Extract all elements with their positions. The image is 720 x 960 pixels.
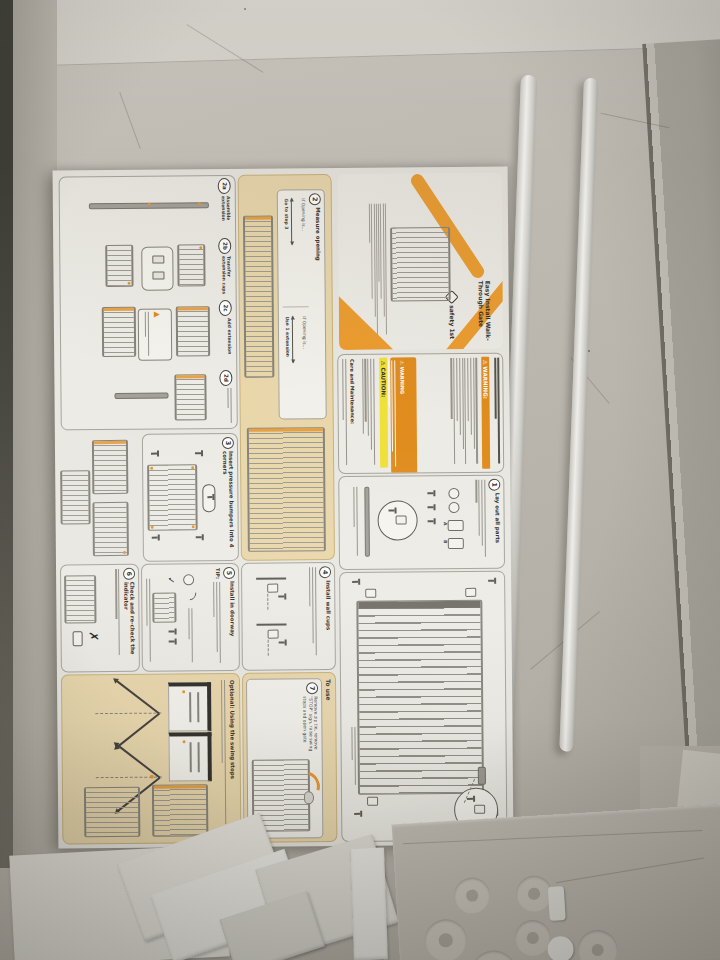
corner-detail-box [168,732,211,781]
warnings-panel: ⚠ WARNING: ⚠ WARNING ⚠ CAUTION: Care and… [337,353,504,474]
step4-panel: 4 Install wall cups [241,562,336,671]
washer-cutout [514,919,552,957]
wall-line [256,577,286,579]
step5-title: Install in doorway [229,581,236,636]
extra-gate-diagrams [61,434,139,561]
step7-number: 7 [306,682,318,694]
gate-illustration [356,600,484,795]
step2a-title: Assemble extension [220,196,231,236]
screw-icon [427,506,433,508]
step6-text [112,565,122,663]
step1-note [350,483,360,563]
knob-icon [183,574,194,585]
magnifier-inset [377,500,417,540]
screw-icon [196,536,202,538]
screw-icon [195,452,201,454]
gate-hinge-stile [358,601,480,609]
step6-title: Check and re-check the indicator [123,582,136,666]
floor-speck [588,350,590,352]
screw-icon [354,813,360,815]
white-plastic-knob [548,886,566,921]
screw-icon [278,595,284,597]
step4-text [306,563,319,663]
measure-arrow [292,316,293,362]
floor-scratch [119,92,140,149]
tip-label: TIP: [212,568,221,579]
mini-gate [174,374,206,420]
step2-goto3: Go to step 3 [283,198,289,258]
step4-number: 4 [319,566,331,578]
gate-illustration-panel [339,571,507,842]
check-icon: ✓ [166,576,176,584]
step4-title: Install wall cups [325,580,332,630]
leader-line [268,640,269,656]
warning-box-text [388,361,397,471]
washer-cutout [576,929,618,960]
step3-number: 3 [222,437,234,449]
screw-icon [427,492,433,494]
warnings-intro [491,354,503,472]
pressure-bumper-icon [202,484,215,512]
mini-gate [60,470,90,524]
extension-gate-illustration [247,427,326,552]
plastic-packaging-post [350,847,388,960]
care-text [339,355,350,473]
hand-icon [304,791,314,804]
x-icon: ✗ [87,631,101,641]
wall-cup-icon [448,488,459,499]
screw-icon [467,798,473,800]
screw-icon [279,641,285,643]
step6-number: 6 [123,568,135,580]
washer-cutout [424,918,468,960]
screw-icon [169,630,175,632]
warning-box: ⚠ WARNING [390,357,417,473]
step5-panel: 5 Install in doorway TIP: ✓ [141,563,240,672]
warning-text [447,354,480,472]
wall-cup-icon [365,589,376,598]
screw-icon [352,581,358,583]
brand-name: safety 1st [448,305,455,339]
washer-cutout [453,877,491,915]
mini-gate [176,306,210,356]
swing-stops-panel: Optional: Using the swing stops [61,673,241,845]
cap-icon [152,272,164,280]
cover-panel: Easy Install Walk-Through Gate safety 1s… [338,173,504,350]
swing-stops-title: Optional: Using the swing stops [229,680,237,830]
step2c-number: 2c [219,300,232,316]
mini-gate [84,787,140,837]
step5-number: 5 [223,567,235,579]
wall-cup-icon [474,805,485,814]
caution-bar: ⚠ CAUTION: [379,358,388,468]
mini-gate [105,245,133,287]
part-a-label: A [442,522,447,526]
rotate-arrow-icon [179,583,199,603]
photo-scene: Easy Install Walk-Through Gate safety 1s… [0,0,720,960]
mini-gate [102,307,136,357]
warning-bar: ⚠ WARNING: [481,357,490,469]
indicator-window-icon [73,631,83,646]
wall-line [257,623,287,625]
step2c-title: Add extension [226,318,232,354]
step2b-title: Transfer extension caps [221,256,232,298]
screw-icon [389,510,395,512]
metal-rod-2 [559,78,598,752]
mini-gate [152,592,176,622]
wall-cup-icon [396,515,407,524]
extension-steps-panel: 2a Assemble extension 2b Transfer extens… [59,175,238,431]
screw-icon [169,640,175,642]
orange-joint-dot [198,202,201,205]
step2b-number: 2b [218,238,231,254]
step3-panel: 3 Insert pressure bumpers into 4 corners [142,433,239,562]
step2b-column: 2b Transfer extension caps [64,238,232,299]
leader-line [267,594,268,610]
extension-gate-illustration [243,216,274,378]
step3-title: Insert pressure bumpers into 4 corners [221,451,234,551]
caution-text [358,355,377,473]
orange-extension-strip [249,428,323,432]
orange-joint-dot [148,203,151,206]
cover-fine-print [365,200,389,344]
swing-arc-diagram [95,687,161,740]
part-b-label: B [442,540,447,543]
wall-cup-icon [367,797,378,806]
measure-panel: 2 Measure opening If Opening is... Go to… [238,174,335,561]
corner-detail-box [168,682,211,731]
orange-extension-strip [245,217,271,220]
step2c-column: 2c Add extension [65,300,233,369]
rod-part-icon [364,487,370,557]
care-title: Care and Maintenance: [349,359,356,424]
wall-cup-icon [268,630,279,639]
dark-floor-gap-left [0,0,13,868]
mini-gate [92,440,128,494]
screw-icon [151,453,157,455]
swing-stops-text [217,676,228,834]
step2-divider [283,306,309,307]
screw-icon [152,537,158,539]
gate-latch-handle [478,767,486,785]
measure-arrow [291,198,292,244]
step3-gate-illustration [147,464,198,530]
screw-icon [428,520,434,522]
step2-if-opening-2: If Opening is... [301,316,307,376]
step2-use-extension: Use 1 extension [284,316,290,386]
step2-title: Measure opening [315,207,322,261]
step2a-column: 2a Assemble extension [64,178,231,237]
mini-gate [92,502,128,556]
wall-cup-icon [267,584,278,593]
part-a-box [448,520,464,531]
step2-box: 2 Measure opening If Opening is... Go to… [277,189,327,419]
upper-floor-band [0,0,720,67]
cover-gate-illustration [390,227,451,302]
warning-box-label: ⚠ WARNING [399,360,405,394]
step1-parts-list [472,476,488,564]
orange-stop-dot [150,775,154,779]
step5-note2 [143,575,153,669]
cap-icon [152,256,164,264]
floor-speck [244,8,246,10]
step7-title: Remove zip tie, remove "STOP" sign, rais… [302,696,319,762]
caution-note-box [138,308,172,360]
step6-panel: 6 Check and re-check the indicator ✗ [60,564,140,673]
step6-gate-illustration [64,575,96,623]
step5-note [185,604,195,668]
step1-title: Lay out all parts [494,493,501,544]
part-b-box [448,538,464,549]
screw-icon [488,580,494,582]
extension-rod-icon [114,392,168,398]
white-plastic-knob [547,936,575,960]
step1-panel: 1 Lay out all parts A B [338,475,505,570]
wall-cup-icon [448,502,459,513]
cap-detail-box [141,246,173,290]
washer-cutout [470,949,519,960]
step1-number: 1 [488,479,500,491]
step2a-number: 2a [218,178,231,194]
gate-illustration-note [348,723,358,791]
step2d-column: 2d [65,370,232,427]
to-use-tab: To use [325,679,332,700]
left-floor-shadow [13,0,57,880]
warning-triangle-icon [154,312,160,318]
cardboard-insert [392,804,720,960]
step2-number: 2 [309,193,321,205]
mini-gate [177,244,205,286]
wall-panel-right [642,36,720,755]
step2d-number: 2d [219,370,232,386]
wall-cup-icon [465,588,476,597]
cover-title: Easy Install Walk-Through Gate [477,281,491,343]
instruction-sheet: Easy Install Walk-Through Gate safety 1s… [53,167,514,849]
step2-if-opening: If Opening is... [300,198,306,258]
